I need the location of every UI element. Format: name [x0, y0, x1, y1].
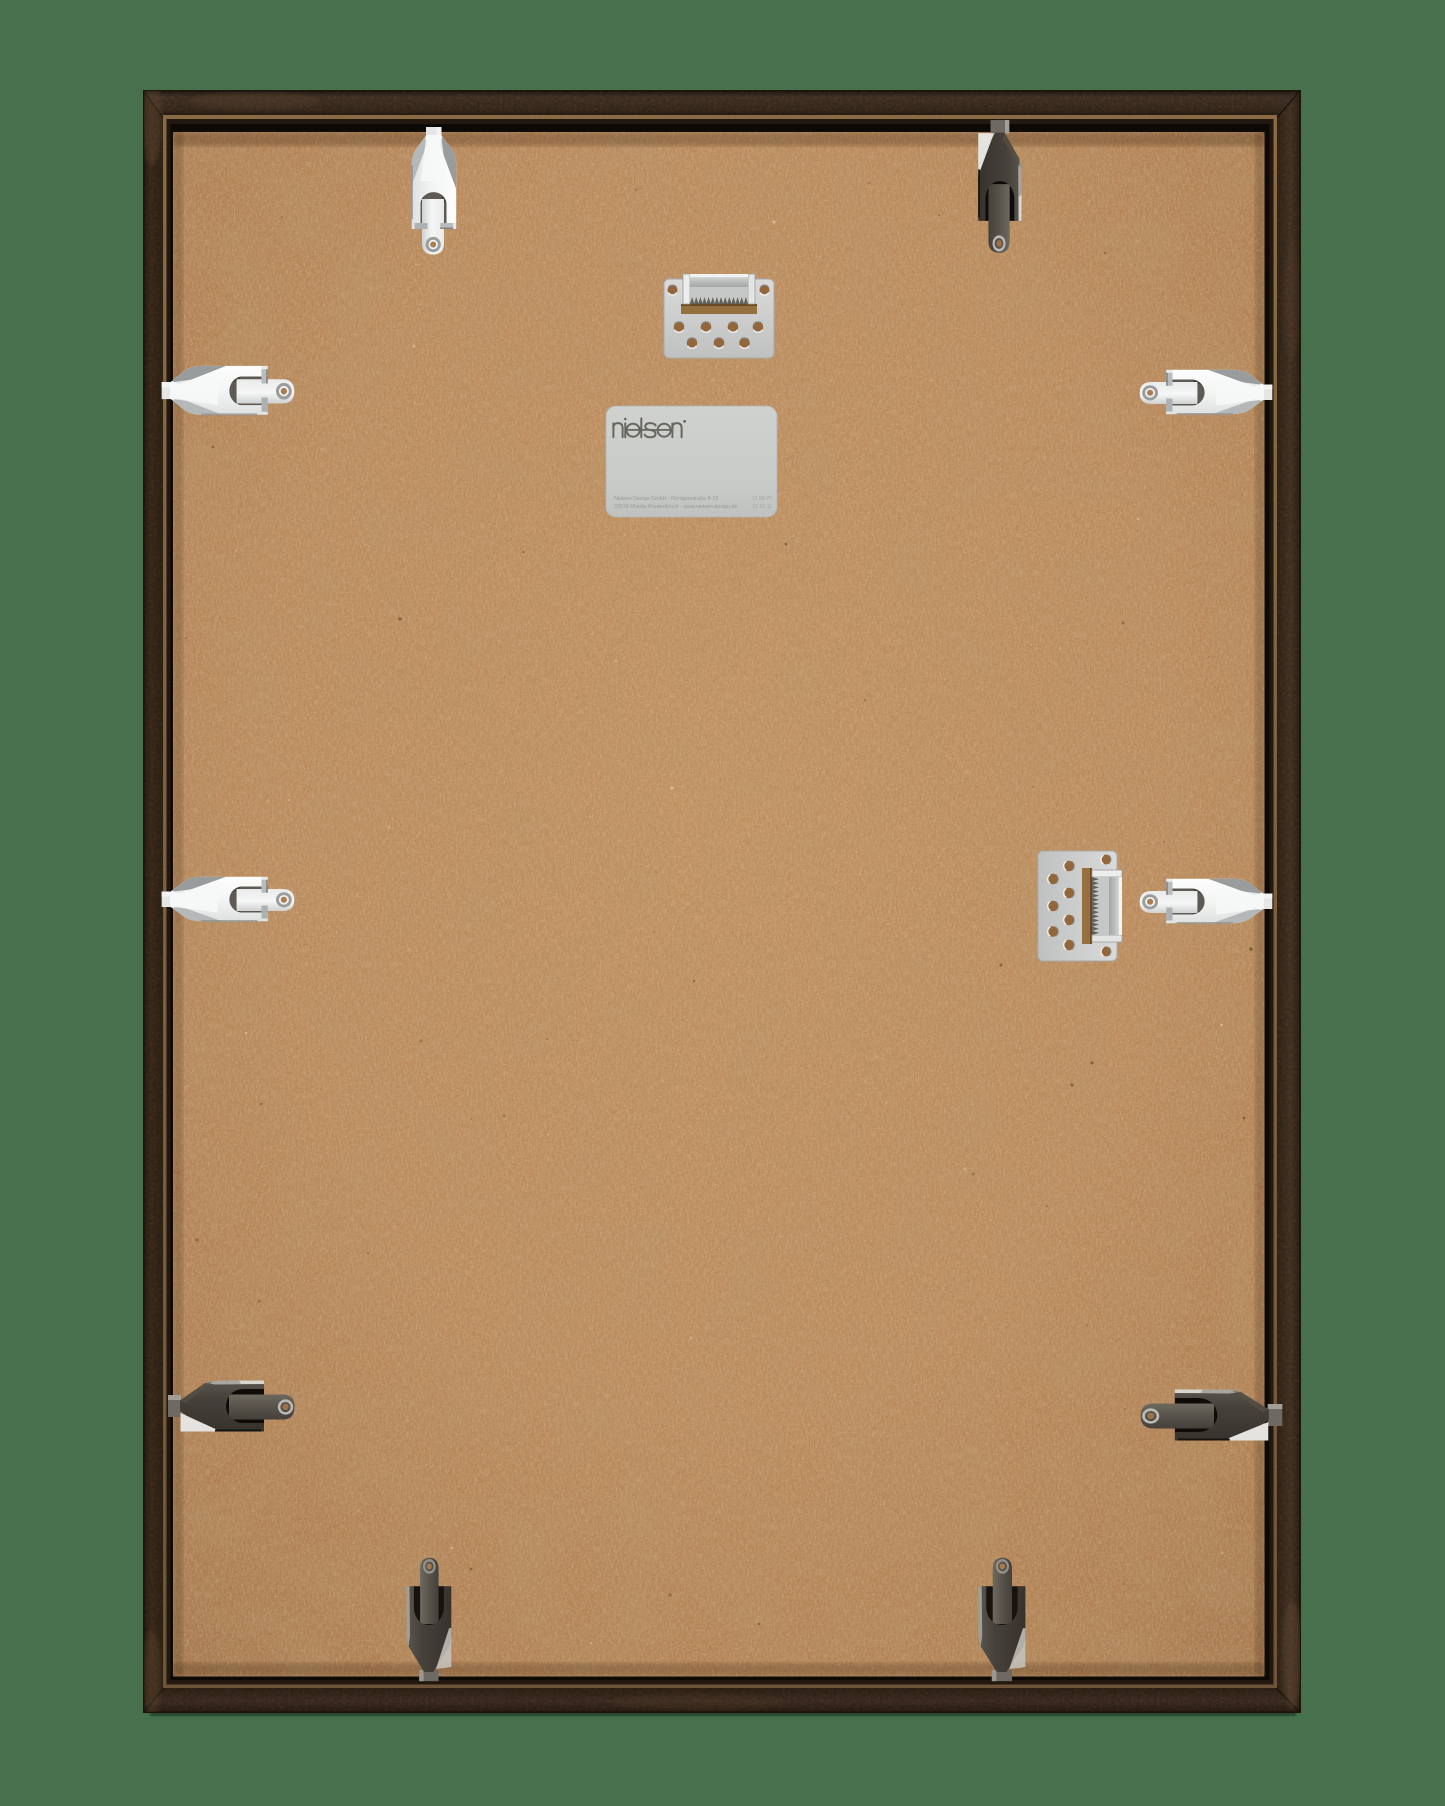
svg-text:11 56 70: 11 56 70 — [752, 496, 772, 502]
svg-text:21 10 11: 21 10 11 — [752, 504, 772, 510]
svg-text:Nielsen Design GmbH · Röntgens: Nielsen Design GmbH · Röntgenstraße 8-12 — [614, 496, 718, 502]
svg-text:33378 Rheda-Wiedenbrück · www.: 33378 Rheda-Wiedenbrück · www.nielsen-de… — [614, 504, 737, 510]
